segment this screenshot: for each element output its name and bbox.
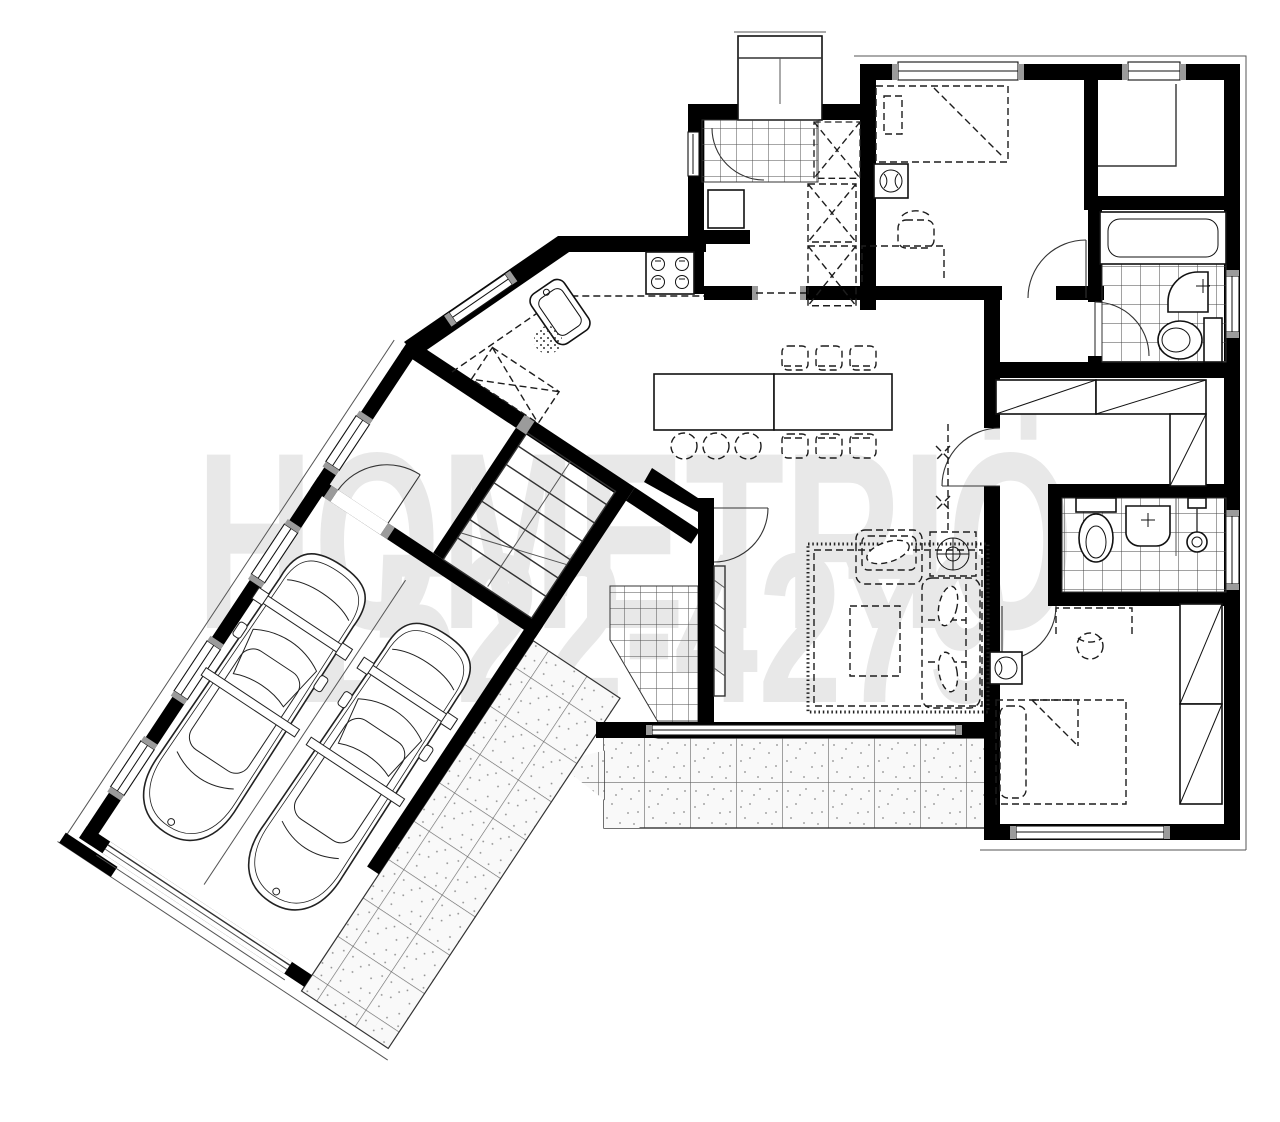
nightstand-lamp (874, 164, 908, 198)
dining-table (774, 374, 892, 430)
master-bedroom (862, 86, 1008, 282)
kitchen-island (654, 374, 774, 430)
bedroom2-lamp (990, 652, 1022, 684)
patio-terrace (556, 738, 986, 828)
bath2-toilet (1076, 498, 1116, 562)
floor-plan-image: HOMETRIÖ 1522-4279 (0, 0, 1280, 1122)
cooktop (646, 252, 694, 294)
bath2-sink (1126, 506, 1170, 546)
entry-vestibule-tiles (702, 120, 818, 182)
bedroom2-wardrobe (1180, 604, 1222, 804)
bedroom2-bed (996, 700, 1126, 804)
shoe-cabinet (708, 190, 744, 228)
bathroom-2 (1062, 498, 1226, 592)
bathtub (1100, 212, 1226, 264)
bathroom-1 (1100, 212, 1226, 362)
patio-tiles (604, 738, 986, 828)
dish-rack (534, 326, 562, 354)
bath1-toilet (1158, 318, 1222, 362)
floor-plan-svg: HOMETRIÖ 1522-4279 (0, 0, 1280, 1122)
walk-in-closet (1098, 84, 1176, 166)
master-bed (876, 86, 1008, 162)
entry-porch (734, 32, 826, 120)
